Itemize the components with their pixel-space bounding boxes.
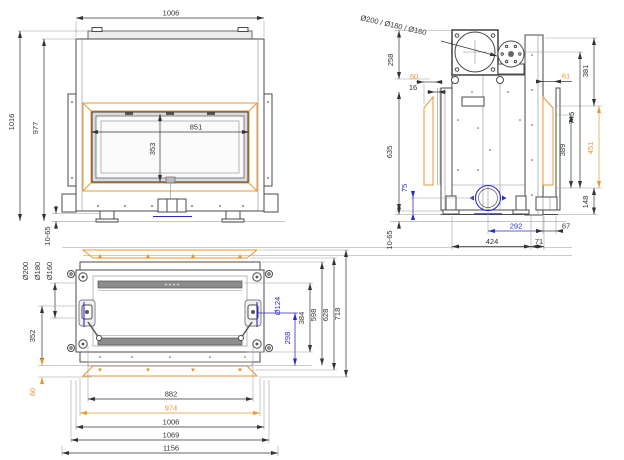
dim-front-top-width: 1006 (163, 9, 180, 18)
technical-drawing-sheet: 1006 1016 977 851 353 10-65 (0, 0, 624, 460)
front-view: 1006 1016 977 851 353 10-65 (7, 9, 285, 246)
dim-plan-352: 352 (28, 330, 37, 343)
projection-lines (62, 248, 572, 256)
flue-label-180: Ø180 (33, 262, 42, 280)
dim-side-61: 61 (562, 72, 570, 81)
dim-plan-air-inlet-dia: Ø124 (273, 297, 282, 315)
dim-side-292: 292 (510, 222, 523, 231)
drawing-canvas: 1006 1016 977 851 353 10-65 (0, 0, 624, 460)
dim-side-635: 635 (385, 146, 394, 159)
dim-side-258: 258 (386, 54, 395, 67)
dim-side-389: 389 (558, 144, 567, 157)
side-rear-frame-orange (543, 97, 553, 185)
plan-rear-frame-orange (83, 366, 257, 376)
dim-plan-384: 384 (297, 312, 306, 325)
dim-plan-1069: 1069 (163, 431, 180, 440)
dim-side-451: 451 (586, 142, 595, 155)
dim-plan-298: 298 (283, 332, 292, 345)
dim-plan-1006: 1006 (163, 418, 180, 427)
dim-front-foot-adjust: 10-65 (43, 226, 52, 245)
dim-side-745: 745 (567, 112, 576, 125)
dim-plan-974: 974 (165, 404, 178, 413)
dim-plan-598: 598 (309, 309, 318, 322)
dim-side-381: 381 (581, 65, 590, 78)
dim-side-71: 71 (535, 237, 543, 246)
dim-side-424: 424 (486, 237, 499, 246)
flue-label-200: Ø200 (21, 262, 30, 280)
dim-side-foot-adjust: 10-65 (385, 230, 394, 249)
flue-diameter-label: Ø200 / Ø180 / Ø160 (360, 13, 428, 37)
dim-front-overall-height: 1016 (7, 114, 16, 131)
dim-side-67: 67 (562, 222, 570, 231)
dim-side-16: 16 (409, 83, 417, 92)
dim-side-148: 148 (581, 196, 590, 209)
dim-plan-882: 882 (165, 390, 178, 399)
dim-front-glass-height: 353 (148, 143, 157, 156)
dim-plan-60: 60 (28, 388, 37, 396)
dim-plan-628: 628 (321, 309, 330, 322)
dim-plan-718: 718 (333, 308, 342, 321)
dim-side-75: 75 (400, 184, 409, 192)
plan-front-frame-orange (83, 250, 257, 258)
plan-rear-glass (98, 338, 242, 345)
side-view: Ø200 / Ø180 / Ø160 258 60 16 635 75 (360, 13, 602, 250)
side-front-frame-orange (424, 97, 433, 185)
dim-plan-1156: 1156 (163, 444, 179, 453)
dim-side-60: 60 (410, 72, 418, 81)
dim-front-glass-width: 851 (190, 123, 203, 132)
plan-view: Ø200 Ø180 Ø160 352 60 Ø124 298 384 (21, 250, 349, 456)
flue-label-160: Ø160 (45, 262, 54, 280)
dim-front-body-height: 977 (31, 122, 40, 135)
